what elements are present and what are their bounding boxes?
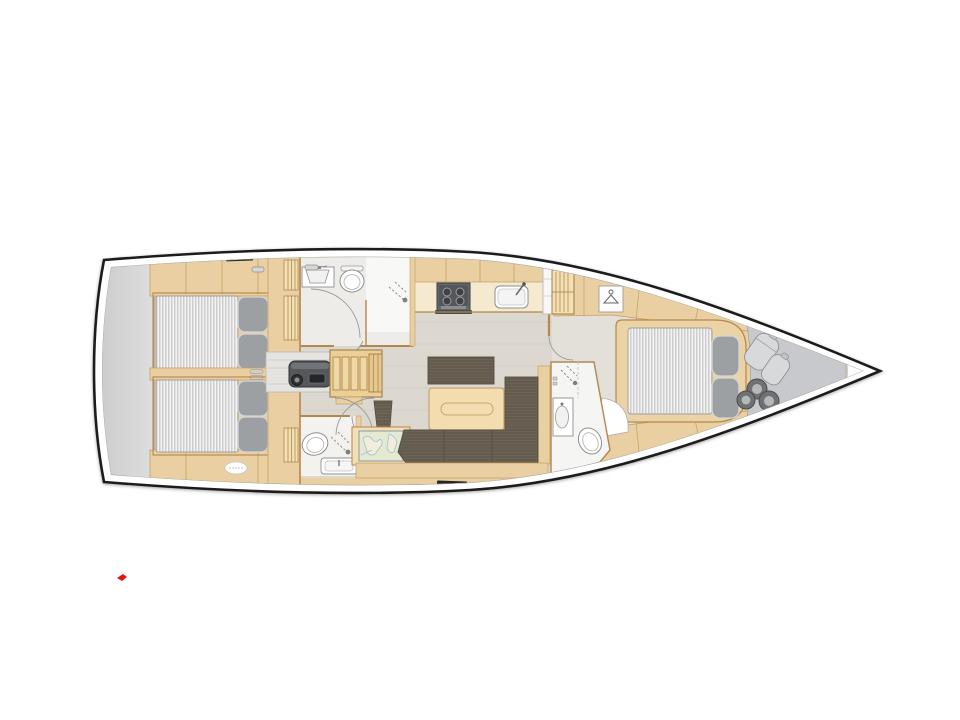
sofa-bottom [398,430,538,463]
brand-plate [225,462,247,474]
engine-bay [266,352,336,392]
fender [737,391,755,409]
pillow [238,297,268,332]
stove [435,283,472,314]
salon-bench [428,357,494,384]
hanging-locker [599,286,623,312]
toilet [340,266,364,292]
sofa-right [505,377,538,432]
head-aft-port-shower-floor [366,250,413,332]
engine [289,361,331,387]
cabin-forward-bed [616,320,746,422]
red-mark [117,574,127,581]
sofa-base-trim [356,463,548,478]
aft-cabin-port-bed [153,293,271,372]
stool [374,401,392,427]
companionway-stairs [330,350,382,404]
interior [96,248,867,496]
sofa-backrest-trim [538,366,550,464]
shelf-slats [552,270,574,314]
aft-cabin-starboard-bed [153,377,271,455]
mattress [628,328,712,414]
vanity-sink [553,398,573,436]
latch [250,370,263,374]
pillow [712,378,739,418]
mattress [156,296,238,369]
floorplan-canvas [0,0,960,720]
pillow [238,334,268,369]
galley-sink [495,282,528,308]
pillow [238,381,268,416]
salon-table [429,388,504,430]
pillow [712,336,739,376]
pillow [238,417,268,452]
yacht-floorplan [0,0,960,720]
mattress [156,380,238,452]
head-aft-port-wall [410,250,415,346]
